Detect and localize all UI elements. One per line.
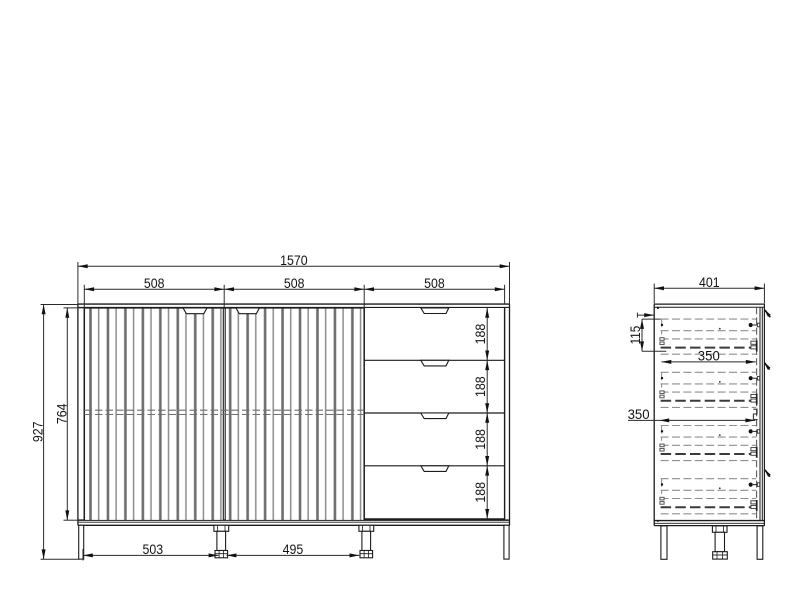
svg-text:188: 188 <box>472 324 488 345</box>
svg-text:508: 508 <box>144 275 165 291</box>
svg-text:1570: 1570 <box>280 252 308 268</box>
svg-text:350: 350 <box>698 348 720 364</box>
svg-text:188: 188 <box>472 376 488 397</box>
svg-text:508: 508 <box>284 275 305 291</box>
svg-text:927: 927 <box>30 421 46 442</box>
svg-text:115: 115 <box>627 326 643 345</box>
svg-text:188: 188 <box>472 429 488 450</box>
svg-text:401: 401 <box>699 274 720 290</box>
svg-text:495: 495 <box>283 541 304 557</box>
svg-text:764: 764 <box>53 403 69 424</box>
svg-text:508: 508 <box>424 275 445 291</box>
svg-text:188: 188 <box>472 482 488 503</box>
svg-text:350: 350 <box>628 406 650 422</box>
svg-text:503: 503 <box>143 541 164 557</box>
